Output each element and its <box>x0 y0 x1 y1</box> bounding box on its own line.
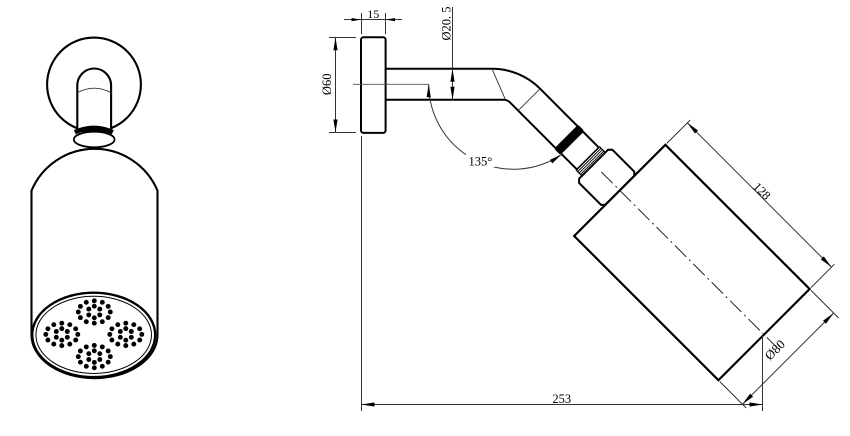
svg-text:253: 253 <box>552 392 571 406</box>
svg-text:Ø60: Ø60 <box>320 74 334 96</box>
svg-text:135°: 135° <box>469 155 493 169</box>
svg-text:15: 15 <box>367 7 379 21</box>
svg-text:Ø20. 5: Ø20. 5 <box>440 6 454 40</box>
